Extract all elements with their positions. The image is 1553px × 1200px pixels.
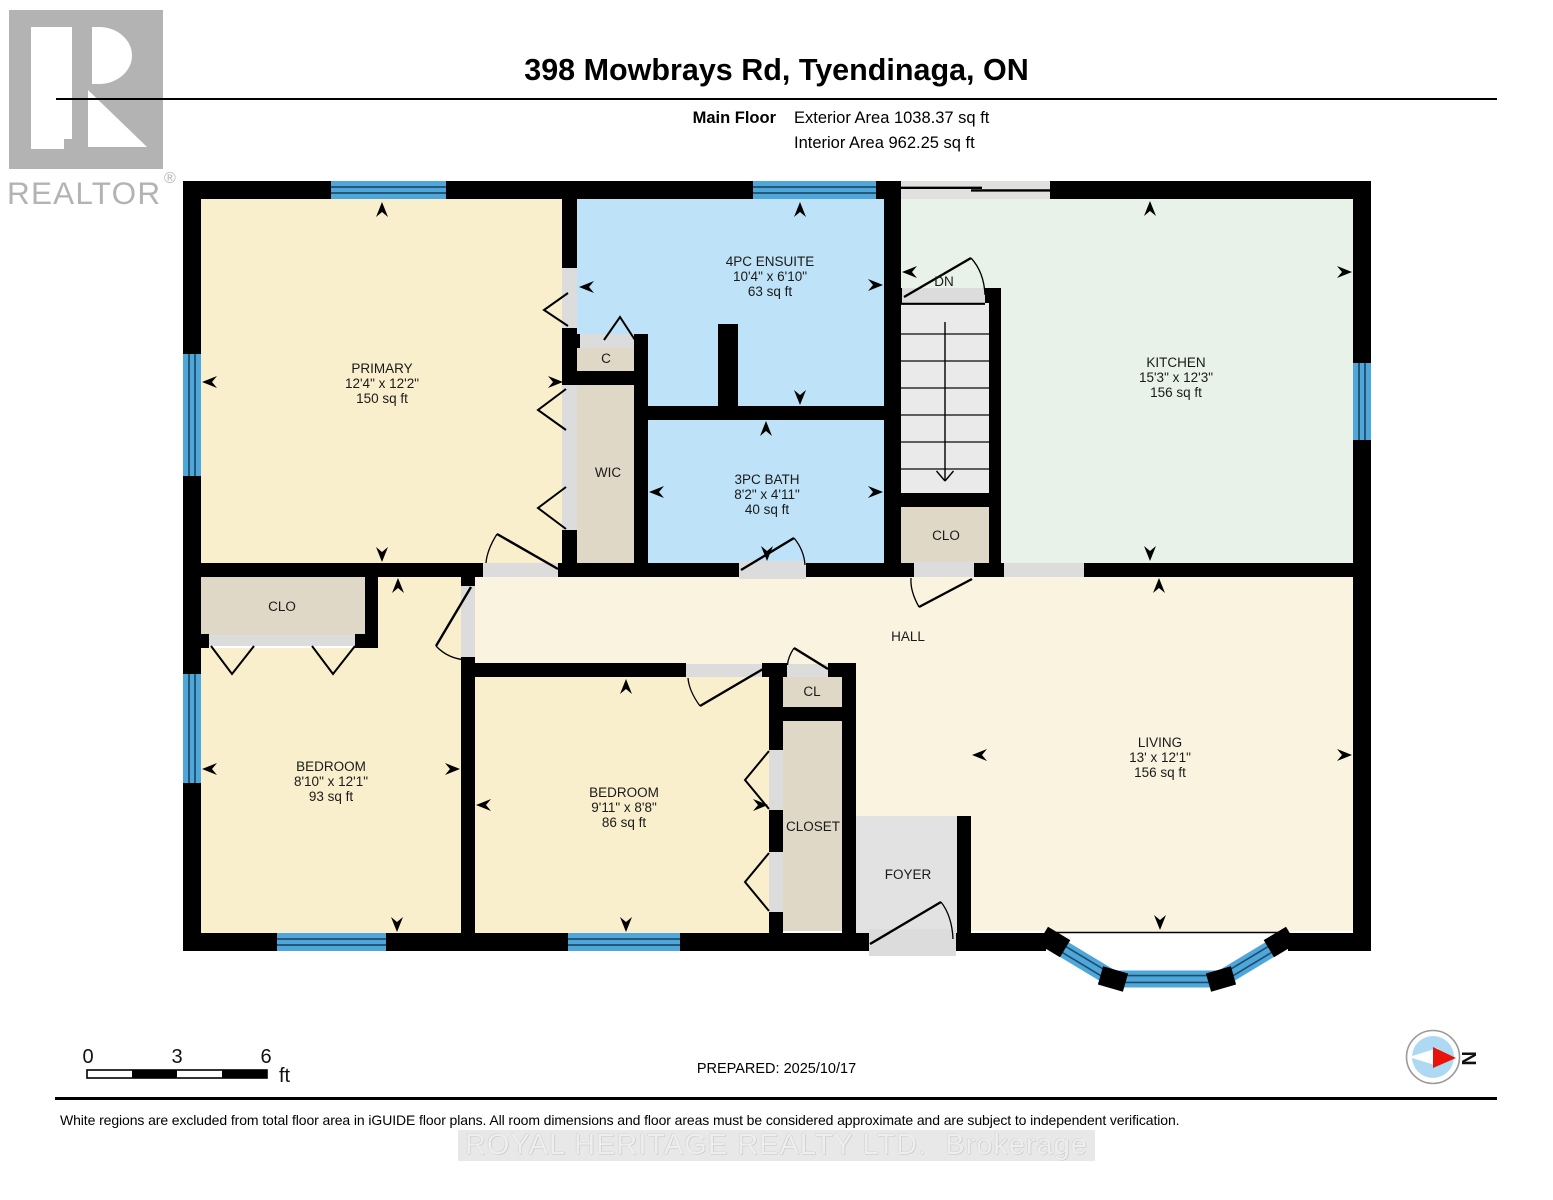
svg-text:WIC: WIC (595, 465, 621, 480)
svg-text:FOYER: FOYER (885, 867, 932, 882)
svg-text:CLO: CLO (932, 528, 960, 543)
svg-text:LIVING: LIVING (1138, 735, 1182, 750)
svg-text:BEDROOM: BEDROOM (589, 785, 659, 800)
svg-text:13' x 12'1": 13' x 12'1" (1129, 750, 1191, 765)
svg-text:40 sq ft: 40 sq ft (745, 502, 790, 517)
svg-text:3PC BATH: 3PC BATH (734, 472, 799, 487)
svg-text:150 sq ft: 150 sq ft (356, 391, 408, 406)
svg-text:9'11" x 8'8": 9'11" x 8'8" (591, 800, 657, 815)
svg-text:CLO: CLO (268, 599, 296, 614)
svg-text:8'2" x 4'11": 8'2" x 4'11" (734, 487, 800, 502)
svg-text:93 sq ft: 93 sq ft (309, 789, 354, 804)
svg-text:8'10" x 12'1": 8'10" x 12'1" (294, 774, 368, 789)
svg-text:12'4" x 12'2": 12'4" x 12'2" (345, 376, 419, 391)
svg-text:C: C (601, 351, 611, 366)
svg-text:10'4" x 6'10": 10'4" x 6'10" (733, 269, 807, 284)
svg-text:63 sq ft: 63 sq ft (748, 284, 793, 299)
svg-text:156 sq ft: 156 sq ft (1150, 385, 1202, 400)
svg-text:4PC ENSUITE: 4PC ENSUITE (726, 254, 815, 269)
svg-text:BEDROOM: BEDROOM (296, 759, 366, 774)
svg-text:N: N (1457, 1051, 1479, 1065)
svg-text:KITCHEN: KITCHEN (1146, 355, 1205, 370)
svg-text:86 sq ft: 86 sq ft (602, 815, 647, 830)
svg-text:15'3" x 12'3": 15'3" x 12'3" (1139, 370, 1213, 385)
svg-text:PRIMARY: PRIMARY (351, 361, 412, 376)
svg-text:CL: CL (803, 684, 821, 699)
svg-text:DN: DN (934, 274, 954, 289)
svg-text:156 sq ft: 156 sq ft (1134, 765, 1186, 780)
svg-text:HALL: HALL (891, 629, 925, 644)
svg-text:CLOSET: CLOSET (786, 819, 840, 834)
